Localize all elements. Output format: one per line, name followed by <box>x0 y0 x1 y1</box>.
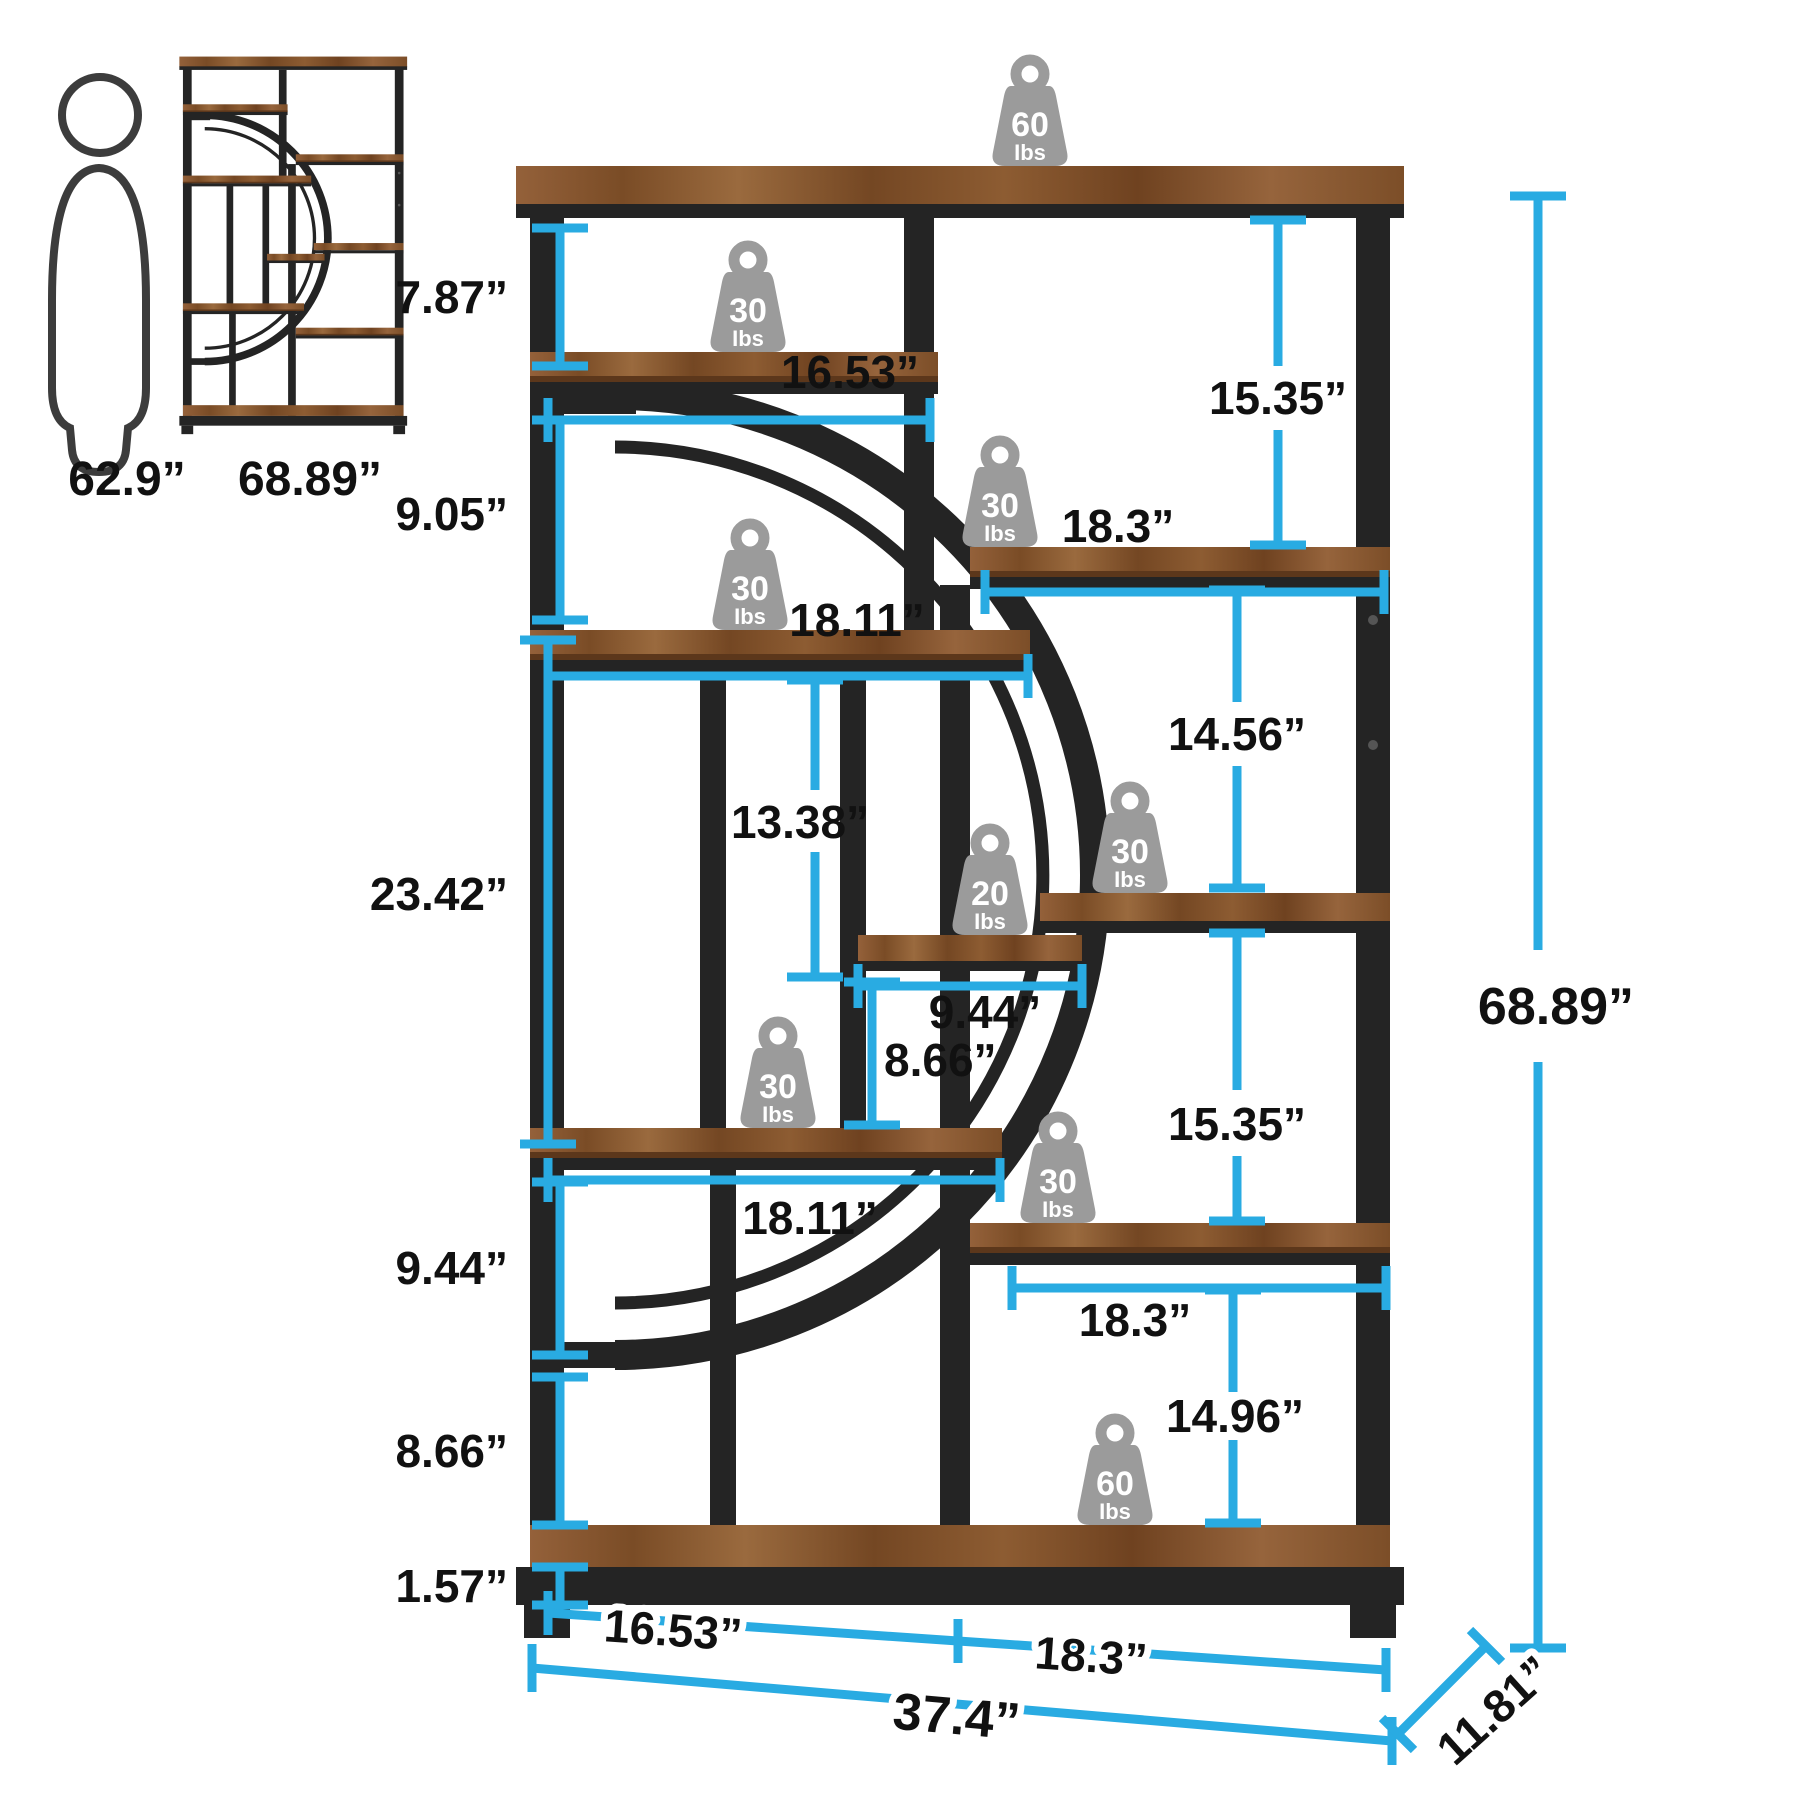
dim-label-gap-left-lower: 9.44” <box>395 1242 508 1294</box>
weight-value: 30 <box>729 292 767 330</box>
weight-unit: Ibs <box>1099 1499 1131 1524</box>
thumbnail-height-label: 68.89” <box>238 453 382 506</box>
dim-label-right-bottom: 14.96” <box>1166 1390 1304 1442</box>
dim-label-bottom-right-width: 18.3” <box>1033 1626 1149 1686</box>
dim-label-shelf-c-width: 18.11” <box>789 594 925 646</box>
weight-value: 30 <box>759 1068 797 1106</box>
weight-badge-top: 60Ibs <box>993 60 1068 166</box>
dim-label-bottom-left-width: 16.53” <box>602 1599 743 1661</box>
person-icon <box>52 77 146 472</box>
dim-label-shelf-g-width: 18.3” <box>1079 1294 1192 1346</box>
weight-value: 30 <box>1039 1163 1077 1201</box>
weight-badge-bottom: 60Ibs <box>1078 1419 1153 1525</box>
dim-line-shelf-g-width <box>1012 1266 1386 1310</box>
dim-line-right-lower <box>1209 933 1265 1221</box>
dim-line-total-height <box>1510 196 1566 1648</box>
dim-label-depth: 11.81” <box>1427 1645 1563 1774</box>
weight-unit: Ibs <box>734 604 766 629</box>
dim-label-total-height: 68.89” <box>1478 978 1634 1036</box>
size-reference: 62.9” 68.89” <box>52 57 407 506</box>
weight-unit: Ibs <box>974 909 1006 934</box>
dim-label-gap-top: 7.87” <box>395 271 508 323</box>
dim-label-small-shelf-width: 9.44” <box>929 986 1042 1038</box>
dim-label-base-height: 1.57” <box>395 1560 508 1612</box>
dim-label-right-upper: 15.35” <box>1209 372 1347 424</box>
weight-value: 20 <box>971 875 1009 913</box>
dim-label-shelf-f-width: 18.11” <box>742 1192 878 1244</box>
person-height-label: 62.9” <box>68 453 185 506</box>
weight-unit: Ibs <box>984 521 1016 546</box>
dim-label-shelf-b-width: 18.3” <box>1062 500 1175 552</box>
dim-label-mid-column: 13.38” <box>731 796 869 848</box>
weight-badge-shelf-a: 30Ibs <box>711 246 786 352</box>
dim-label-mid-lower: 8.66” <box>884 1034 997 1086</box>
dim-label-gap-large-left: 23.42” <box>370 868 508 920</box>
weight-unit: Ibs <box>1014 140 1046 165</box>
dim-label-shelf-a-width: 16.53” <box>781 346 919 398</box>
dim-label-gap-left-bottom: 8.66” <box>395 1425 508 1477</box>
weight-value: 60 <box>1096 1465 1134 1503</box>
dim-line-gap-large-left <box>520 640 576 1144</box>
dim-label-right-lower: 15.35” <box>1168 1098 1306 1150</box>
product-dimension-diagram: 62.9” 68.89” 60Ibs 30Ibs 30Ibs 30Ibs 20I… <box>0 0 1800 1800</box>
weight-value: 30 <box>1111 833 1149 871</box>
weight-badge-shelf-f: 30Ibs <box>741 1022 816 1128</box>
weight-unit: Ibs <box>1042 1197 1074 1222</box>
dim-label-right-mid: 14.56” <box>1168 708 1306 760</box>
diagram-canvas: 62.9” 68.89” 60Ibs 30Ibs 30Ibs 30Ibs 20I… <box>0 0 1800 1800</box>
bookshelf-thumbnail <box>179 57 407 435</box>
weight-unit: Ibs <box>1114 867 1146 892</box>
weight-badge-shelf-c: 30Ibs <box>713 524 788 630</box>
dim-label-total-width: 37.4” <box>891 1683 1023 1752</box>
weight-value: 30 <box>981 487 1019 525</box>
weight-badge-shelf-b: 30Ibs <box>963 441 1038 547</box>
weight-unit: Ibs <box>732 326 764 351</box>
weight-value: 60 <box>1011 106 1049 144</box>
dim-label-gap-second: 9.05” <box>395 488 508 540</box>
weight-value: 30 <box>731 570 769 608</box>
weight-unit: Ibs <box>762 1102 794 1127</box>
